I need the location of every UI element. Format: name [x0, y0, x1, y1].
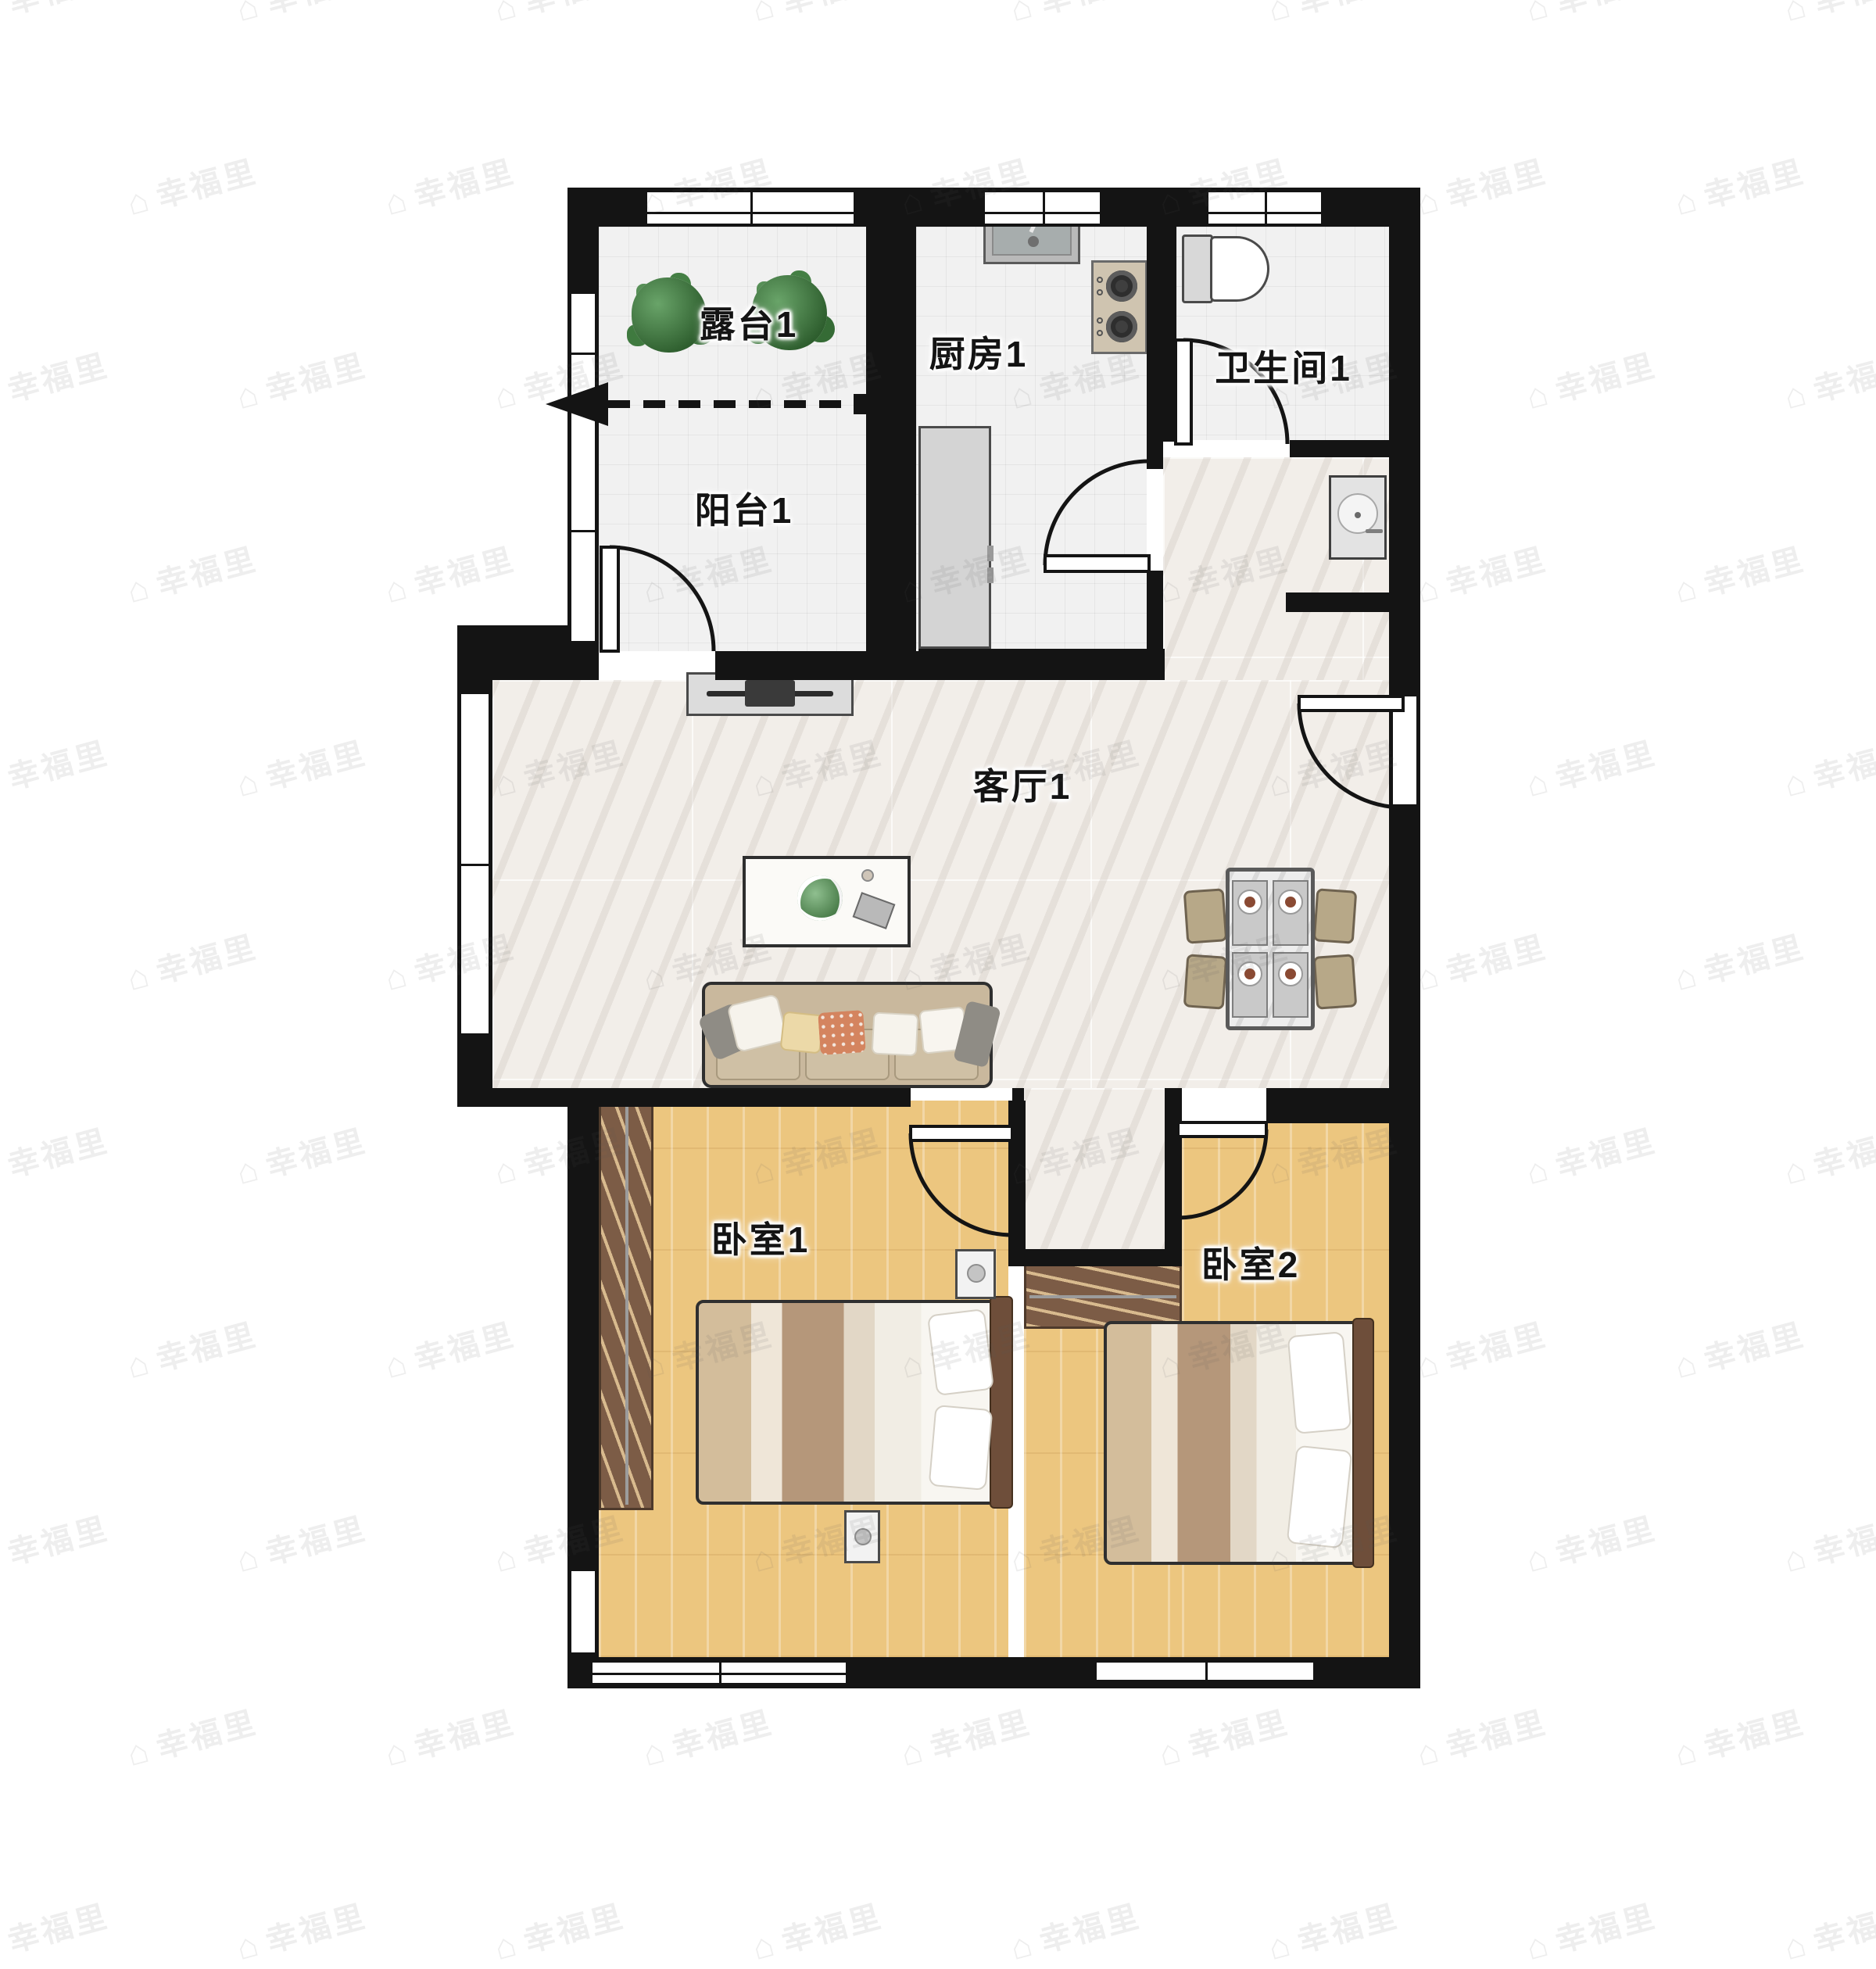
- watermark: ⌂幸福里: [746, 1891, 887, 1969]
- door-swing-overlay: [0, 0, 1876, 1876]
- bedroom2-door-leaf: [1178, 1122, 1266, 1137]
- house-icon: ⌂: [748, 1924, 781, 1967]
- house-icon: ⌂: [490, 1924, 523, 1967]
- house-icon: ⌂: [1264, 1924, 1297, 1967]
- entry-door-arc: [1299, 703, 1403, 807]
- house-icon: ⌂: [1006, 1924, 1039, 1967]
- balcony-label: 阳台1: [695, 482, 794, 534]
- bedroom2-label: 卧室2: [1201, 1237, 1301, 1288]
- house-icon: ⌂: [1780, 1924, 1813, 1967]
- kitchen-door-arc: [1045, 461, 1149, 565]
- balcony-door-leaf: [601, 547, 618, 651]
- entry-door-leaf: [1299, 696, 1403, 711]
- house-icon: ⌂: [232, 1924, 265, 1967]
- bedroom2-door-arc: [1178, 1129, 1266, 1218]
- house-icon: ⌂: [1522, 1924, 1555, 1967]
- watermark: ⌂幸福里: [0, 1891, 113, 1969]
- bathroom-label: 卫生间1: [1215, 340, 1352, 392]
- divider-arrow-head: [546, 382, 608, 426]
- bedroom1-door-leaf: [911, 1126, 1012, 1140]
- watermark: ⌂幸福里: [1778, 1891, 1876, 1969]
- watermark: ⌂幸福里: [1004, 1891, 1145, 1969]
- bedroom1-door-arc: [911, 1133, 1012, 1235]
- house-icon: ⌂: [0, 1924, 7, 1967]
- balcony-door-arc: [610, 547, 714, 651]
- bedroom1-label: 卧室1: [711, 1212, 811, 1263]
- watermark: ⌂幸福里: [1262, 1891, 1403, 1969]
- terrace-label: 露台1: [700, 296, 799, 348]
- watermark: ⌂幸福里: [1520, 1891, 1661, 1969]
- kitchen-door-leaf: [1045, 556, 1149, 571]
- kitchen-label: 厨房1: [929, 326, 1029, 378]
- watermark: ⌂幸福里: [489, 1891, 629, 1969]
- watermark: ⌂幸福里: [231, 1891, 371, 1969]
- floor-plan: 露台1 阳台1 厨房1 卫生间1 客厅1 卧室1 卧室2 ⌂幸福里⌂幸福里⌂幸福…: [0, 0, 1876, 1876]
- bathroom-door-leaf: [1176, 340, 1191, 444]
- living-label: 客厅1: [973, 758, 1072, 810]
